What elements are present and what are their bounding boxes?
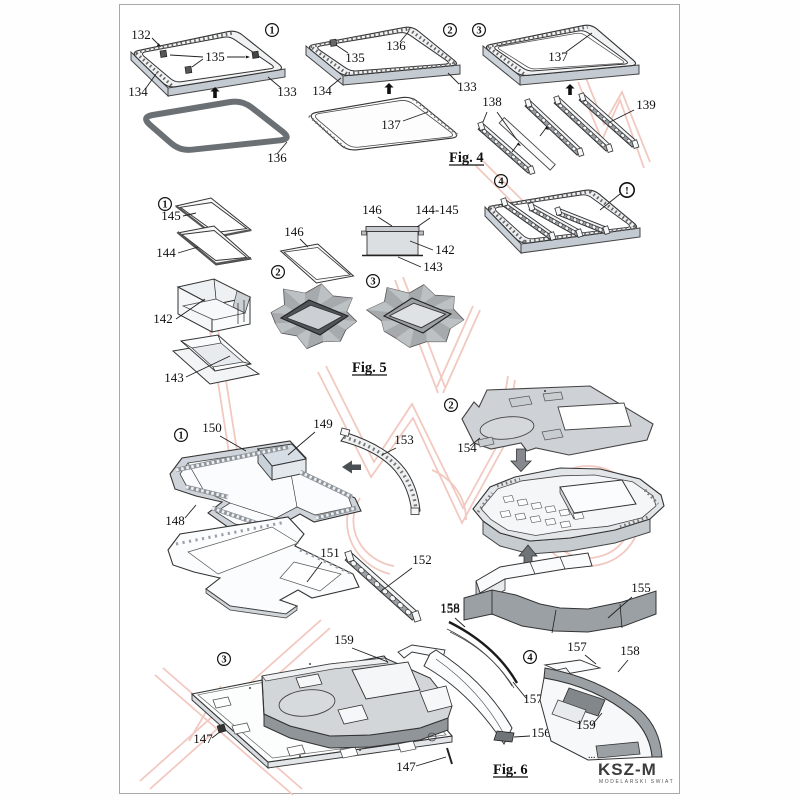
svg-text:155: 155 [631, 580, 651, 595]
svg-text:135: 135 [205, 49, 225, 64]
svg-text:144: 144 [156, 245, 176, 260]
svg-text:2: 2 [275, 268, 280, 279]
svg-text:147: 147 [193, 731, 213, 746]
svg-text:146: 146 [284, 224, 304, 239]
svg-text:Fig. 5: Fig. 5 [352, 360, 387, 376]
svg-text:132: 132 [131, 27, 151, 42]
svg-text:145: 145 [161, 208, 181, 223]
svg-text:137: 137 [381, 117, 401, 132]
svg-text:1: 1 [269, 26, 274, 37]
svg-text:Fig. 4: Fig. 4 [449, 150, 484, 166]
svg-text:139: 139 [636, 97, 656, 112]
svg-text:142: 142 [153, 311, 173, 326]
svg-text:158: 158 [440, 600, 460, 615]
svg-text:4: 4 [527, 653, 533, 664]
svg-text:153: 153 [394, 432, 414, 447]
svg-text:...: ... [588, 750, 596, 761]
svg-text:136: 136 [267, 150, 287, 165]
svg-text:143: 143 [423, 259, 443, 274]
svg-text:133: 133 [277, 84, 297, 99]
svg-text:4: 4 [498, 177, 504, 188]
svg-text:158: 158 [620, 643, 640, 658]
svg-text:159: 159 [334, 632, 354, 647]
svg-text:2: 2 [447, 26, 452, 37]
svg-text:3: 3 [370, 277, 375, 288]
svg-text:151: 151 [320, 545, 340, 560]
svg-text:!: ! [625, 185, 629, 197]
svg-text:144-145: 144-145 [415, 202, 458, 217]
svg-text:3: 3 [221, 655, 226, 666]
svg-text:147: 147 [396, 759, 416, 774]
svg-text:135: 135 [345, 50, 365, 65]
svg-text:148: 148 [165, 513, 185, 528]
svg-text:137: 137 [548, 49, 568, 64]
svg-text:150: 150 [202, 420, 222, 435]
svg-text:143: 143 [164, 370, 184, 385]
svg-text:136: 136 [386, 38, 406, 53]
svg-text:134: 134 [128, 84, 148, 99]
svg-text:Fig. 6: Fig. 6 [493, 762, 528, 778]
svg-text:149: 149 [313, 416, 333, 431]
svg-text:133: 133 [457, 79, 477, 94]
svg-text:146: 146 [362, 202, 382, 217]
svg-text:MODELARSKI SWIAT: MODELARSKI SWIAT [599, 779, 674, 785]
svg-text:134: 134 [312, 83, 332, 98]
svg-text:142: 142 [435, 242, 455, 257]
svg-text:2: 2 [448, 401, 453, 412]
svg-text:KSZ-M: KSZ-M [598, 760, 657, 779]
svg-text:138: 138 [482, 94, 502, 109]
svg-text:1: 1 [178, 431, 183, 442]
svg-text:152: 152 [412, 552, 432, 567]
svg-text:157: 157 [567, 639, 587, 654]
svg-text:3: 3 [476, 26, 481, 37]
